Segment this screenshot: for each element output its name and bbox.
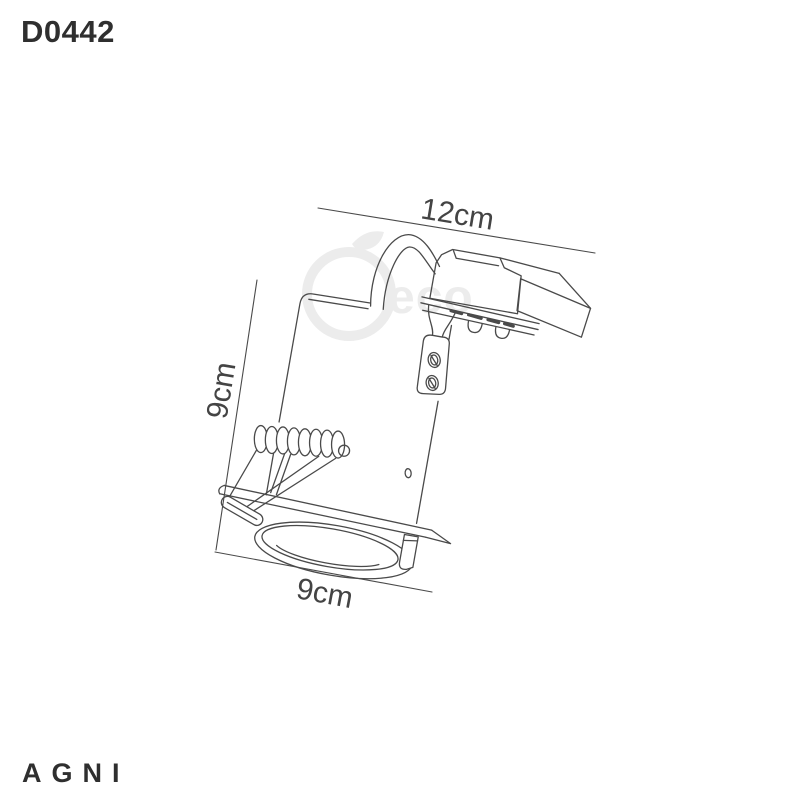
can-body [266,291,453,523]
dimension-top-label: 12cm [419,192,497,236]
body-screw-hole [405,468,412,477]
product-line-drawing: eco [0,0,800,803]
watermark-text: eco [388,271,474,324]
watermark: eco [307,231,474,336]
spring-clip [216,412,352,541]
watermark-leaf-icon [352,231,384,250]
dimension-bottom-label: 9cm [294,572,356,615]
dimension-left-label: 9cm [201,360,243,421]
terminal-block [512,279,593,338]
brand-logo: AGNI [22,758,130,789]
product-drawing-page: D0442 eco [0,0,800,803]
spring-coil [250,415,353,468]
